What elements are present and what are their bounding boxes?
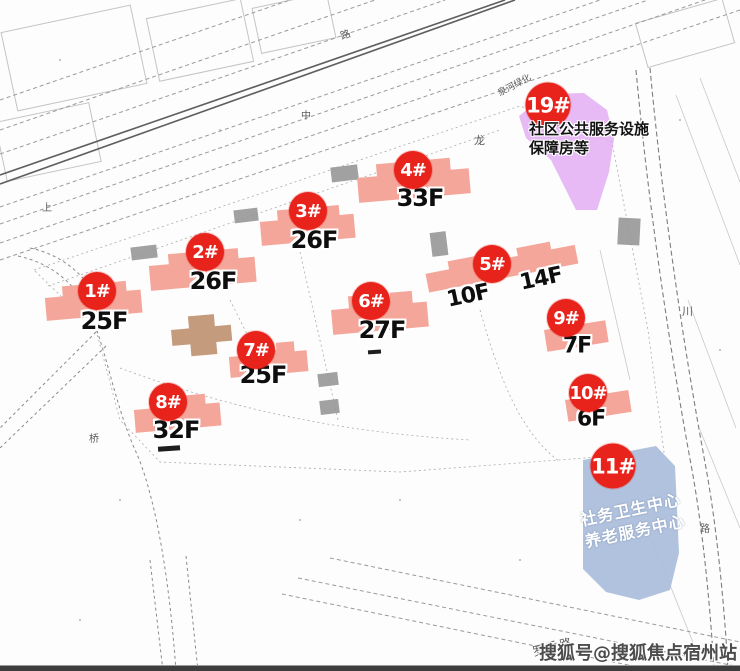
- map-label-shang: 上: [42, 199, 52, 214]
- building-2-floors: 26F: [190, 267, 237, 295]
- map-label-qiao: 桥: [89, 430, 99, 445]
- building-6-badge: 6#: [352, 282, 390, 320]
- zone-11-badge: 11#: [591, 444, 636, 489]
- map-label-zhong: 中: [301, 107, 311, 122]
- building-9-floors: 7F: [563, 334, 591, 359]
- building-10-badge: 10#: [569, 374, 607, 412]
- map-label-chuan: 川: [682, 303, 693, 319]
- building-9-badge: 9#: [547, 299, 585, 337]
- building-footprints: [44, 156, 632, 433]
- site-plan-image: 1# 2# 3# 4# 5# 6# 7# 8# 9# 10# 19# 11# 2…: [0, 0, 740, 671]
- building-4-floors: 33F: [397, 184, 444, 212]
- building-8-floors: 32F: [153, 416, 200, 444]
- public-service-line1: 社区公共服务设施: [529, 120, 649, 139]
- building-7-badge: 7#: [237, 331, 275, 369]
- public-service-zone-label: 社区公共服务设施 保障房等: [529, 120, 649, 158]
- building-4-badge: 4#: [394, 151, 432, 189]
- clubhouse-footprint: [170, 313, 233, 358]
- building-3-badge: 3#: [289, 192, 327, 230]
- building-1-floors: 25F: [81, 307, 128, 335]
- watermark: 搜狐号@搜狐焦点宿州站: [539, 639, 737, 665]
- map-label-long: 龙: [474, 132, 485, 148]
- bottom-edge-bar: [0, 665, 740, 671]
- building-5-badge: 5#: [473, 245, 511, 283]
- building-3-floors: 26F: [291, 226, 338, 254]
- public-service-line2: 保障房等: [529, 139, 649, 158]
- building-1-badge: 1#: [78, 272, 116, 310]
- building-6-floors: 27F: [359, 316, 406, 344]
- building-2-badge: 2#: [186, 233, 224, 271]
- map-label-lu-right: 路: [700, 520, 710, 535]
- building-8-badge: 8#: [149, 383, 187, 421]
